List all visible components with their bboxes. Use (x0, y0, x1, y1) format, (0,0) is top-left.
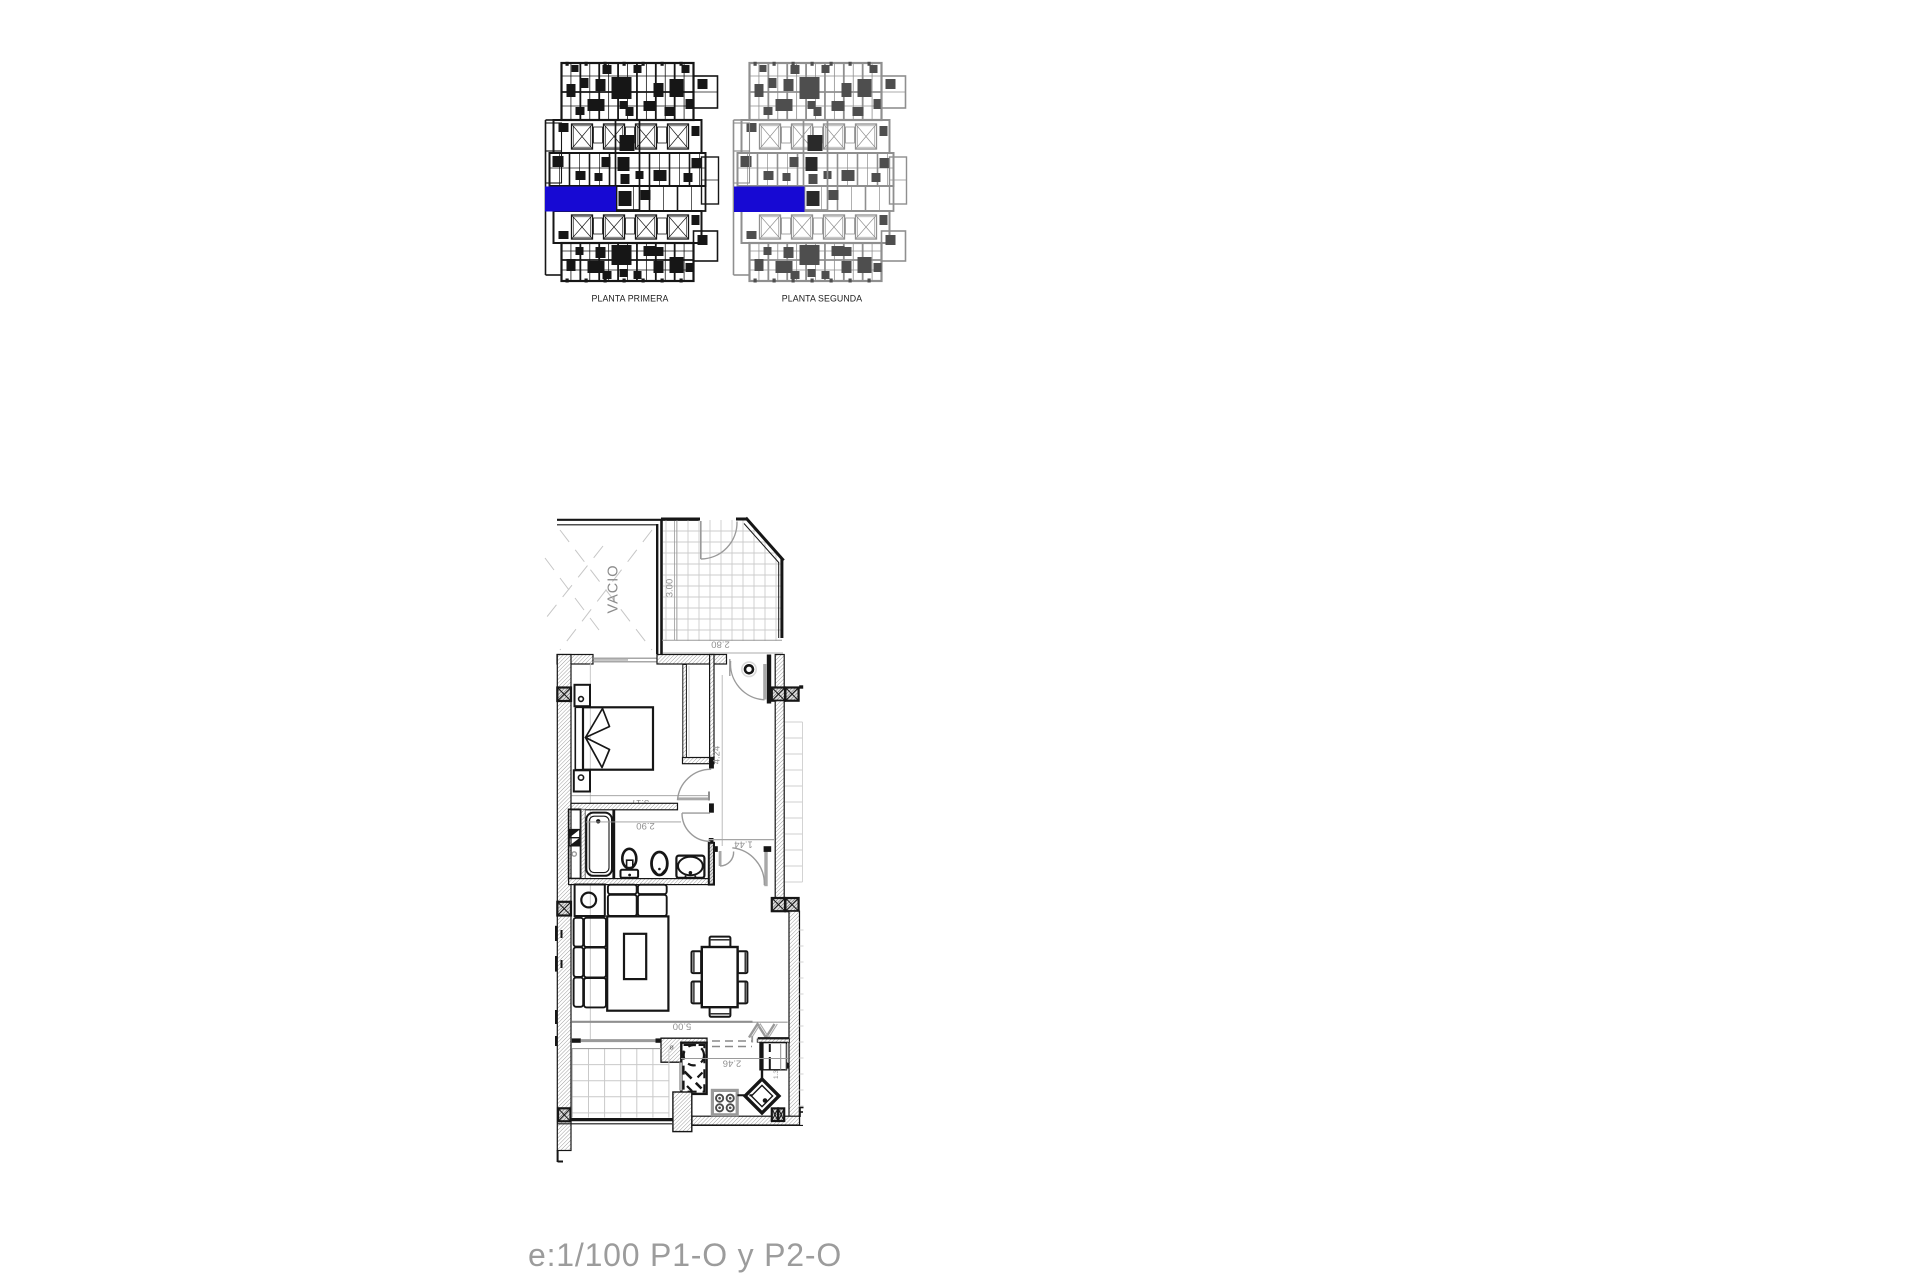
svg-text:ø: ø (669, 1043, 674, 1052)
svg-text:VACIO: VACIO (606, 564, 622, 613)
svg-text:5.00: 5.00 (673, 1021, 692, 1032)
svg-text:3.00: 3.00 (665, 579, 676, 598)
svg-text:4.24: 4.24 (712, 746, 723, 765)
svg-text:2.80: 2.80 (711, 639, 730, 650)
svg-text:PLANTA SEGUNDA: PLANTA SEGUNDA (782, 294, 862, 304)
svg-text:1.44: 1.44 (734, 839, 753, 850)
svg-text:1.3: 1.3 (773, 1070, 780, 1079)
svg-text:2.46: 2.46 (723, 1058, 742, 1069)
svg-text:2.90: 2.90 (636, 820, 655, 831)
svg-text:e:1/100 P1-O y P2-O: e:1/100 P1-O y P2-O (528, 1237, 842, 1273)
svg-text:PLANTA PRIMERA: PLANTA PRIMERA (591, 294, 668, 304)
